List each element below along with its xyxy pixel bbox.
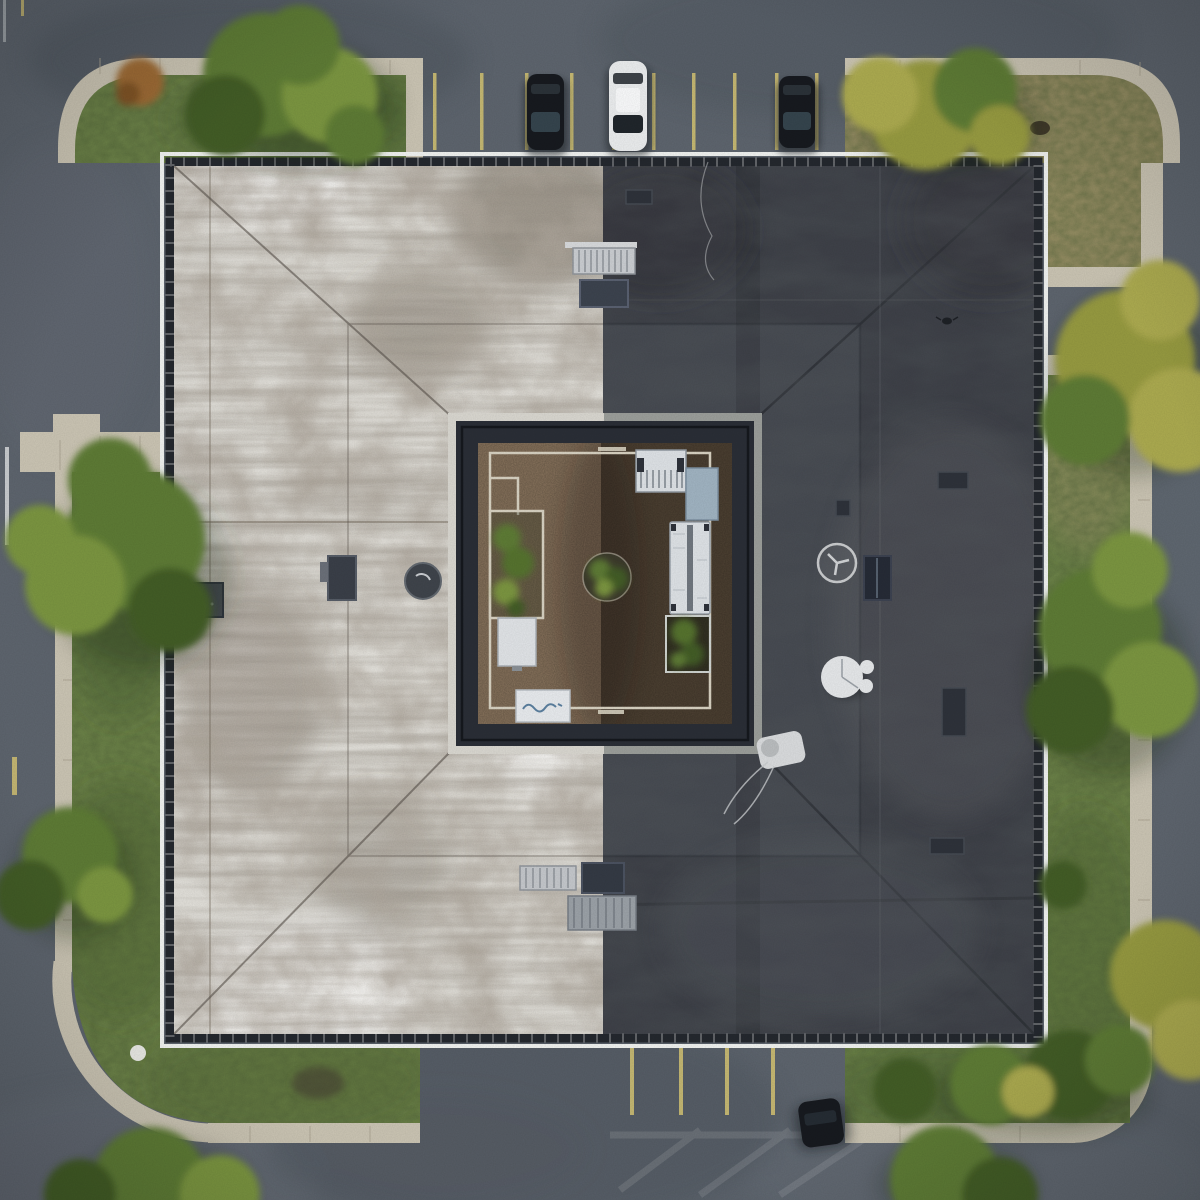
vignette [0,0,1200,1200]
aerial-photo [0,0,1200,1200]
aerial-photo-canvas [0,0,1200,1200]
